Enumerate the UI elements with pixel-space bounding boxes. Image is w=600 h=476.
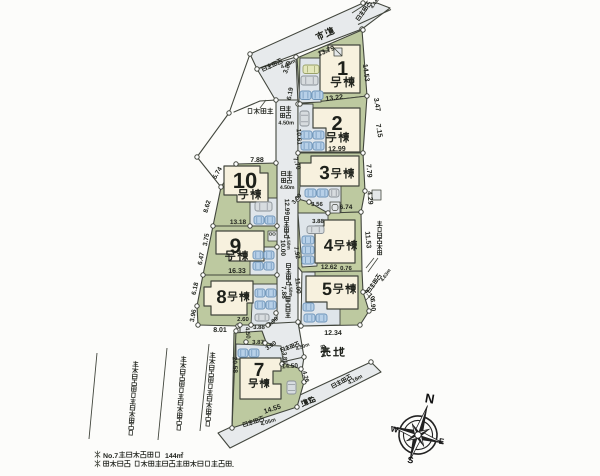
svg-text:11.00: 11.00 bbox=[293, 278, 301, 295]
svg-text:4.50: 4.50 bbox=[243, 327, 251, 340]
svg-text:6.74: 6.74 bbox=[340, 204, 353, 211]
svg-text:6.90: 6.90 bbox=[368, 298, 376, 312]
svg-text:12.62: 12.62 bbox=[321, 264, 338, 271]
svg-text:14.50: 14.50 bbox=[282, 363, 299, 371]
svg-text:2: 2 bbox=[331, 113, 342, 135]
svg-text:7: 7 bbox=[254, 360, 265, 381]
svg-text:·: · bbox=[129, 462, 131, 469]
svg-text:4.29: 4.29 bbox=[365, 191, 373, 205]
svg-text:3: 3 bbox=[319, 163, 330, 184]
svg-text:12.99: 12.99 bbox=[328, 146, 346, 154]
svg-text:3.87: 3.87 bbox=[252, 339, 264, 346]
svg-text:3.88: 3.88 bbox=[312, 218, 324, 225]
svg-text:4.50m: 4.50m bbox=[287, 283, 293, 297]
svg-text:9.74: 9.74 bbox=[318, 344, 326, 358]
svg-text:4.50m: 4.50m bbox=[278, 121, 294, 127]
svg-text:0.76: 0.76 bbox=[340, 265, 352, 272]
svg-text:13.18: 13.18 bbox=[230, 219, 247, 226]
svg-text:4.50m: 4.50m bbox=[285, 236, 291, 250]
svg-text:20.58: 20.58 bbox=[231, 357, 239, 374]
svg-text:4: 4 bbox=[324, 236, 334, 255]
svg-text:11.53: 11.53 bbox=[363, 231, 371, 249]
svg-text:12.99: 12.99 bbox=[283, 199, 291, 216]
svg-text:7.88: 7.88 bbox=[250, 157, 264, 164]
svg-text:.: . bbox=[232, 462, 234, 469]
svg-text:10.61: 10.61 bbox=[295, 129, 303, 146]
svg-text:5: 5 bbox=[322, 279, 332, 299]
svg-text:3.56: 3.56 bbox=[311, 201, 323, 208]
svg-text:7.79: 7.79 bbox=[364, 164, 372, 178]
svg-text:16.33: 16.33 bbox=[228, 268, 246, 275]
svg-text:8: 8 bbox=[216, 286, 226, 307]
svg-text:4.50m: 4.50m bbox=[280, 185, 295, 191]
svg-text:2.60: 2.60 bbox=[237, 316, 249, 323]
svg-text:No.7: No.7 bbox=[103, 453, 118, 460]
svg-text:8.01: 8.01 bbox=[213, 327, 227, 334]
svg-text:3.88: 3.88 bbox=[253, 324, 265, 331]
svg-text:12.34: 12.34 bbox=[324, 330, 342, 337]
